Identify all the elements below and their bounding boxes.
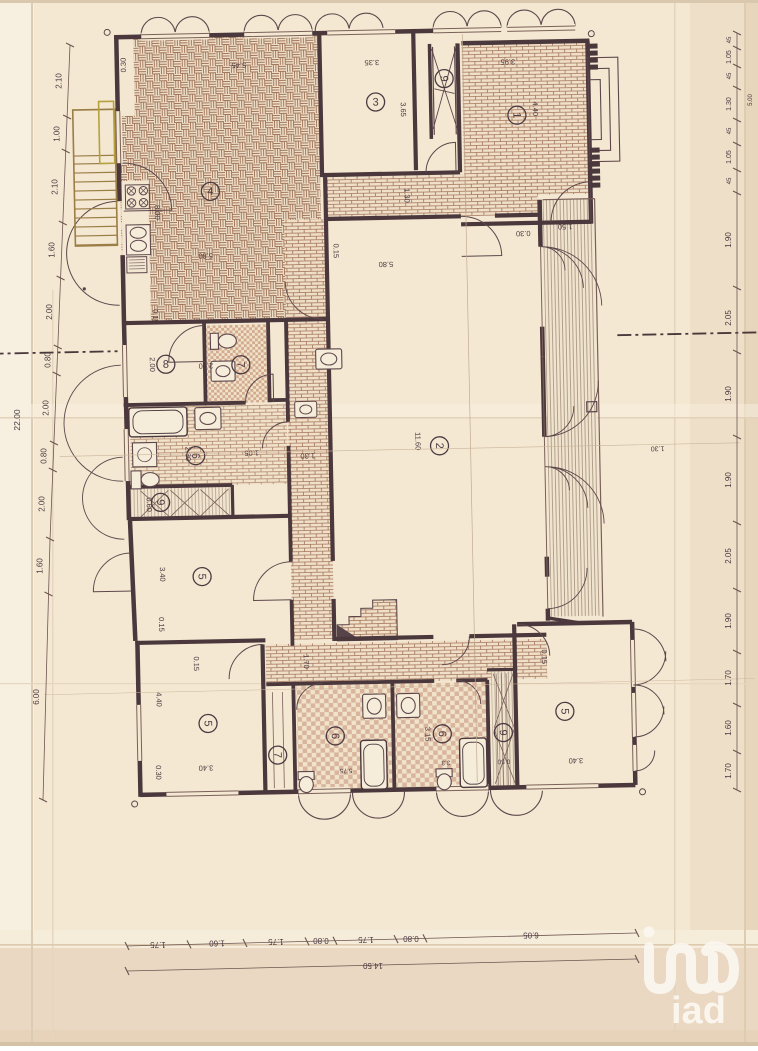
svg-text:1.90: 1.90 [724,472,733,488]
svg-text:5.45: 5.45 [231,61,246,70]
svg-text:1.70: 1.70 [724,763,733,779]
svg-text:1.05: 1.05 [726,50,733,64]
svg-text:3.35: 3.35 [364,58,379,67]
svg-text:1.30: 1.30 [300,451,315,460]
svg-text:2.00: 2.00 [41,400,50,416]
svg-text:22.00: 22.00 [12,409,22,431]
svg-text:45: 45 [727,72,733,79]
svg-text:2.00: 2.00 [38,496,47,512]
svg-text:3.40: 3.40 [568,756,583,765]
svg-text:0.15: 0.15 [540,649,549,664]
svg-text:1.75: 1.75 [358,935,374,944]
svg-text:2.00: 2.00 [198,361,213,370]
svg-text:2.05: 2.05 [724,310,733,326]
svg-text:1: 1 [510,112,522,118]
svg-text:6.00: 6.00 [32,689,41,705]
svg-text:5.75: 5.75 [339,767,352,774]
svg-text:5: 5 [201,720,213,726]
svg-text:3.15: 3.15 [423,727,432,742]
svg-text:1.00: 1.00 [52,126,61,142]
svg-text:3.95: 3.95 [500,57,515,66]
svg-text:1.75: 1.75 [268,937,284,946]
svg-text:0.15: 0.15 [151,309,160,324]
svg-text:1.30: 1.30 [402,188,411,203]
svg-text:0.30: 0.30 [154,765,163,780]
svg-text:4.40: 4.40 [154,692,163,707]
svg-text:45: 45 [727,36,733,43]
svg-text:0.50: 0.50 [497,757,510,764]
svg-text:0.80: 0.80 [313,936,329,945]
svg-text:1.05: 1.05 [244,448,259,457]
svg-text:2.10: 2.10 [50,179,59,195]
svg-text:3.3: 3.3 [441,759,451,766]
svg-text:1.90: 1.90 [724,613,733,629]
svg-text:1.75: 1.75 [150,940,166,949]
svg-text:2.00: 2.00 [148,357,157,372]
svg-text:9: 9 [497,729,509,735]
svg-text:4.40: 4.40 [531,101,540,116]
svg-text:7: 7 [234,362,246,368]
svg-text:1.60: 1.60 [35,558,44,574]
svg-text:1.30: 1.30 [726,97,733,111]
svg-text:5.80: 5.80 [198,251,213,260]
svg-text:1.50: 1.50 [558,222,573,231]
svg-text:3.40: 3.40 [199,763,214,772]
svg-text:11.60: 11.60 [413,432,422,450]
svg-text:7: 7 [271,752,283,758]
svg-text:45: 45 [727,177,733,184]
svg-text:2.00: 2.00 [45,304,54,320]
svg-text:8.00: 8.00 [153,205,162,220]
svg-text:3.40: 3.40 [158,567,167,582]
svg-text:0.15: 0.15 [192,656,201,671]
svg-text:3.65: 3.65 [399,102,408,117]
svg-text:0.30: 0.30 [119,58,128,73]
svg-text:5.80: 5.80 [378,260,393,269]
svg-text:0.60: 0.60 [145,497,154,512]
svg-text:0.15: 0.15 [331,243,340,258]
svg-text:45: 45 [727,127,733,134]
svg-text:4: 4 [207,186,213,198]
svg-text:0.80: 0.80 [39,448,48,464]
svg-text:0.15: 0.15 [157,617,166,632]
svg-text:8: 8 [163,359,169,371]
svg-text:iad: iad [671,990,726,1032]
svg-text:1.70: 1.70 [302,654,311,669]
svg-text:6: 6 [329,733,341,739]
svg-text:9: 9 [154,499,166,505]
svg-text:9: 9 [438,75,450,81]
svg-text:1.60: 1.60 [724,720,733,736]
svg-text:1.70: 1.70 [724,670,733,686]
svg-text:3: 3 [372,96,378,108]
svg-text:2: 2 [433,443,445,449]
svg-text:6: 6 [436,731,448,737]
svg-text:14.50: 14.50 [362,961,383,970]
svg-text:0.30: 0.30 [516,229,531,238]
svg-text:5.00: 5.00 [748,94,754,106]
svg-text:5: 5 [196,573,208,579]
svg-text:0.80: 0.80 [403,934,419,943]
svg-text:6.05: 6.05 [523,931,539,940]
svg-text:1.90: 1.90 [724,386,733,402]
svg-text:1.90: 1.90 [724,232,733,248]
svg-text:0.80: 0.80 [43,352,52,368]
svg-text:1.30: 1.30 [651,444,665,451]
svg-text:5: 5 [558,708,570,714]
svg-text:2.05: 2.05 [724,548,733,564]
svg-text:2.10: 2.10 [55,73,64,89]
svg-text:1.60: 1.60 [48,242,57,258]
svg-text:1.60: 1.60 [209,939,225,948]
svg-text:1.05: 1.05 [726,150,733,164]
